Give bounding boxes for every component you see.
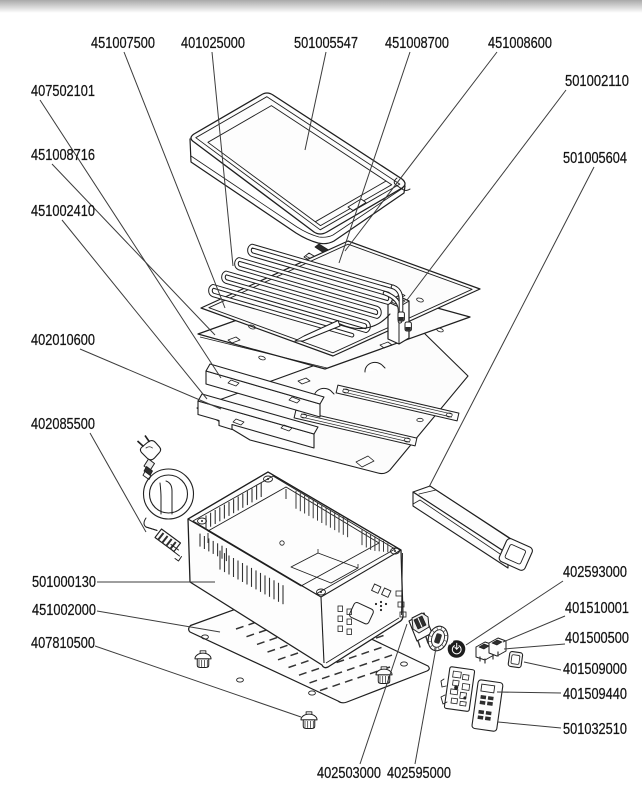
svg-text:451008716: 451008716 xyxy=(31,147,95,164)
svg-text:402595000: 402595000 xyxy=(387,765,451,782)
svg-text:451008600: 451008600 xyxy=(488,35,552,52)
svg-text:407502101: 407502101 xyxy=(31,83,95,100)
svg-text:501005547: 501005547 xyxy=(294,35,358,52)
svg-text:401509440: 401509440 xyxy=(563,686,627,703)
svg-text:401500500: 401500500 xyxy=(565,630,629,647)
svg-text:451007500: 451007500 xyxy=(91,35,155,52)
svg-text:451002000: 451002000 xyxy=(32,602,96,619)
svg-text:401510001: 401510001 xyxy=(565,600,629,617)
svg-text:451002410: 451002410 xyxy=(31,203,95,220)
svg-text:501032510: 501032510 xyxy=(563,721,627,738)
svg-text:402503000: 402503000 xyxy=(317,765,381,782)
svg-text:501000130: 501000130 xyxy=(32,574,96,591)
svg-text:501002110: 501002110 xyxy=(565,73,629,90)
svg-text:407810500: 407810500 xyxy=(31,635,95,652)
svg-text:402085500: 402085500 xyxy=(31,416,95,433)
svg-text:451008700: 451008700 xyxy=(385,35,449,52)
svg-text:402593000: 402593000 xyxy=(563,564,627,581)
svg-text:402010600: 402010600 xyxy=(31,332,95,349)
svg-text:501005604: 501005604 xyxy=(563,150,627,167)
svg-text:401025000: 401025000 xyxy=(181,35,245,52)
svg-text:401509000: 401509000 xyxy=(563,661,627,678)
